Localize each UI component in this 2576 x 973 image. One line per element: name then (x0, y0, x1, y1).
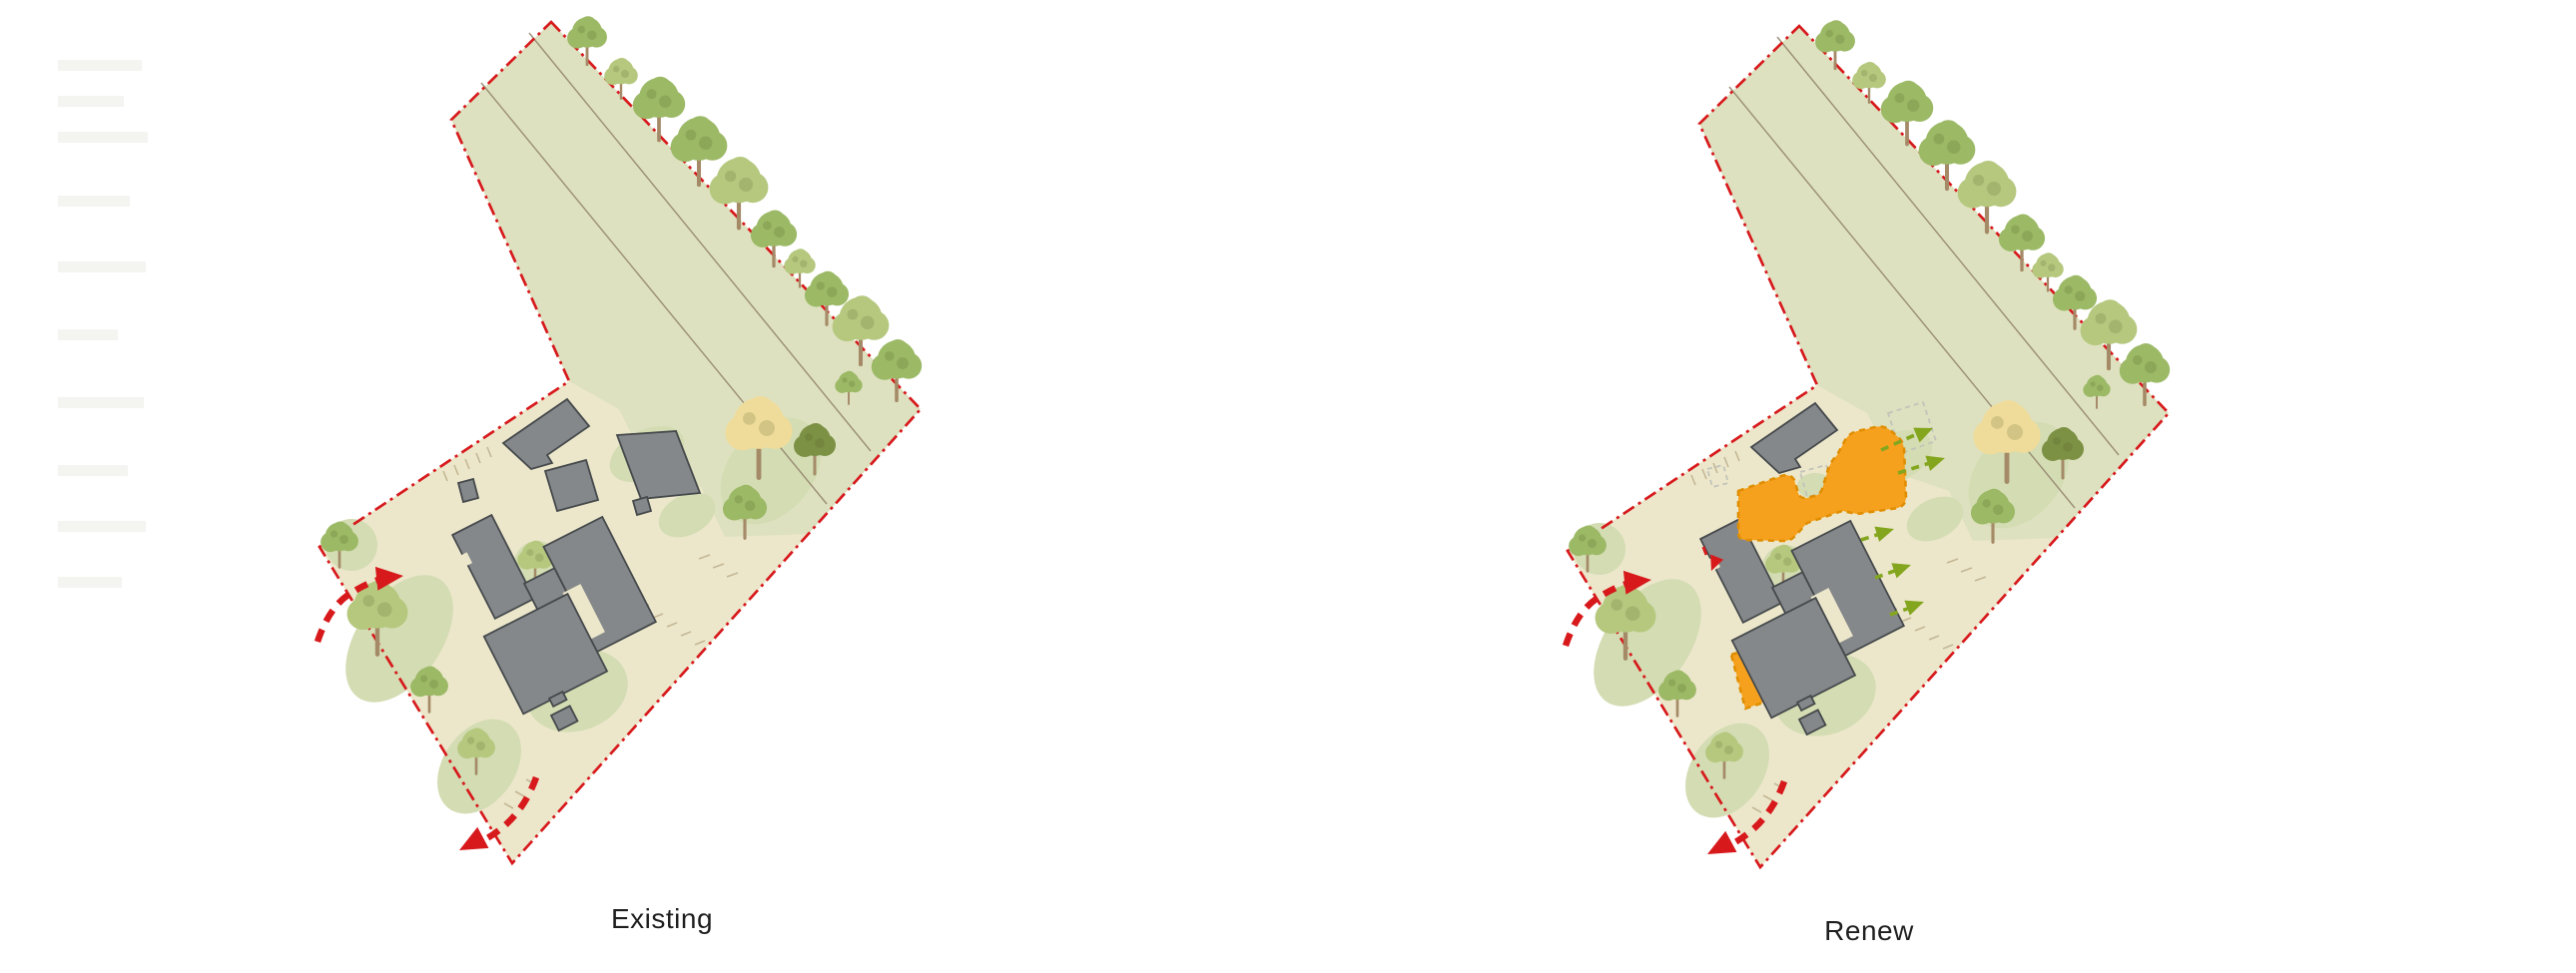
page: Existing Renew (0, 0, 2576, 973)
site-comparison-canvas (0, 0, 2576, 973)
existing-site-plan (318, 16, 922, 863)
existing-plan-label: Existing (532, 903, 792, 935)
renew-plan-label: Renew (1739, 915, 1999, 947)
scan-artifacts (58, 60, 148, 588)
existing-building-east-shed (633, 497, 651, 515)
renew-site-plan (1566, 20, 2170, 867)
